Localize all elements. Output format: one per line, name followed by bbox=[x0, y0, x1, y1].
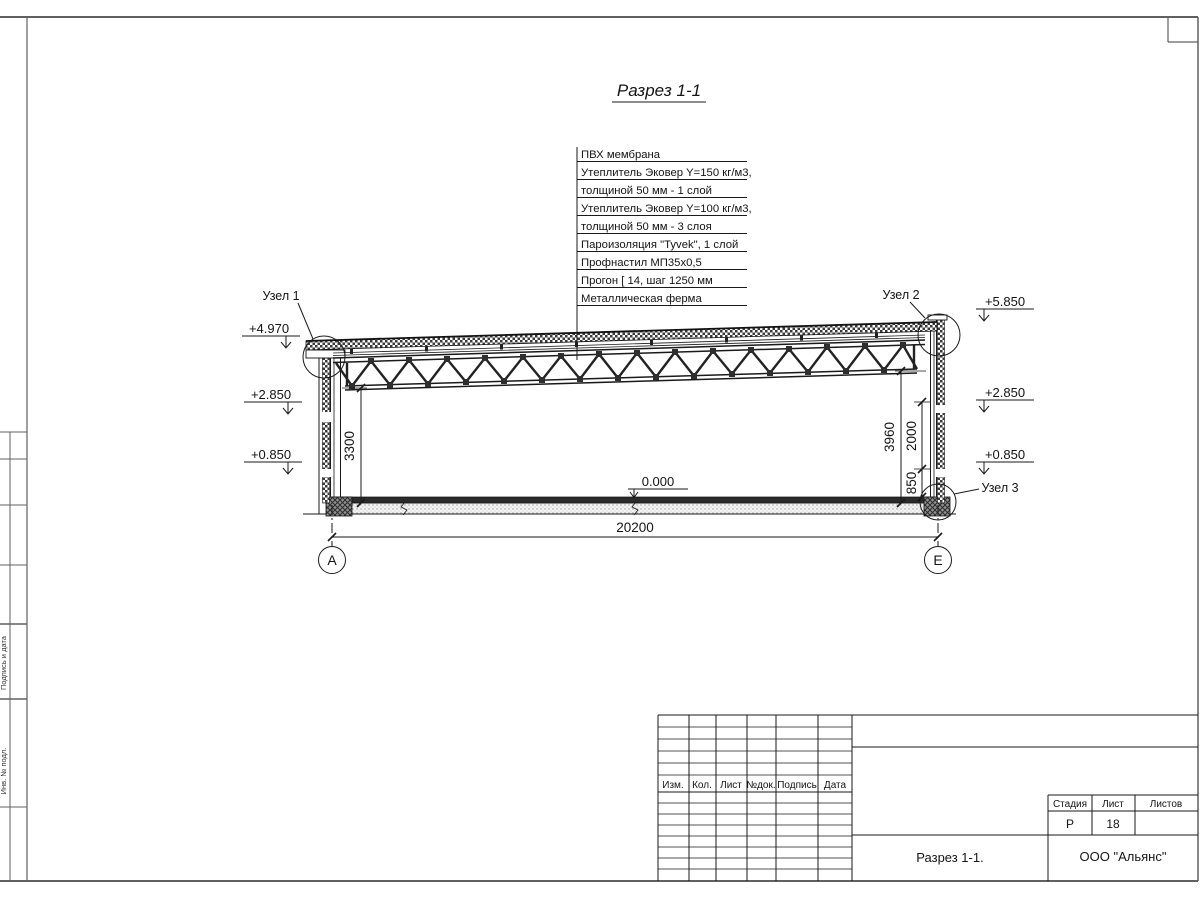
left-wall bbox=[319, 350, 341, 514]
level-right-low: +0.850 bbox=[985, 447, 1025, 462]
level-right-top: +5.850 bbox=[985, 294, 1025, 309]
steel-truss bbox=[333, 340, 925, 390]
node-2-label: Узел 2 bbox=[882, 288, 919, 302]
level-left-mid: +2.850 bbox=[251, 387, 291, 402]
node-1-label: Узел 1 bbox=[262, 289, 299, 303]
tb-stage-value: Р bbox=[1066, 817, 1074, 831]
layer-label-3: Утеплитель Эковер Y=100 кг/м3, bbox=[581, 203, 752, 215]
layer-label-8: Металлическая ферма bbox=[581, 293, 702, 305]
layer-label-7: Прогон [ 14, шаг 1250 мм bbox=[581, 275, 713, 287]
view-title: Разрез 1-1 bbox=[612, 81, 706, 102]
tb-header-doc: №док. bbox=[746, 780, 775, 791]
tb-sheets-label: Листов bbox=[1150, 799, 1183, 810]
tb-header-kol: Кол. bbox=[692, 780, 712, 791]
level-left-top: +4.970 bbox=[249, 321, 289, 336]
tb-company: ООО "Альянс" bbox=[1080, 849, 1167, 864]
dim-span: 20200 bbox=[616, 520, 654, 535]
tb-sheet-label: Лист bbox=[1102, 799, 1124, 810]
tb-sheet-value: 18 bbox=[1106, 817, 1120, 831]
section-drawing-canvas: Подпись и дата Инв. № подл. Разрез 1-1 bbox=[0, 0, 1200, 900]
axis-left-label: А bbox=[327, 552, 337, 568]
axis-right-label: Е bbox=[933, 552, 942, 568]
layer-label-2: толщиной 50 мм - 1 слой bbox=[581, 185, 712, 197]
dim-low-height: 850 bbox=[904, 472, 919, 495]
level-zero: 0.000 bbox=[642, 474, 675, 489]
dim-mid-height: 2000 bbox=[904, 421, 919, 451]
layer-label-0: ПВХ мембрана bbox=[581, 149, 661, 161]
view-title-text: Разрез 1-1 bbox=[617, 81, 701, 100]
tb-drawing-name: Разрез 1-1. bbox=[916, 850, 983, 865]
tb-stage-label: Стадия bbox=[1053, 799, 1087, 810]
level-left-low: +0.850 bbox=[251, 447, 291, 462]
roof-edge-beam bbox=[306, 350, 345, 358]
side-stamp-label-1: Подпись и дата bbox=[0, 635, 8, 690]
dim-left-height: 3300 bbox=[342, 431, 357, 461]
title-block: Изм. Кол. Лист №док. Подпись Дата Стадия… bbox=[658, 715, 1198, 881]
layer-label-6: Профнастил МП35х0,5 bbox=[581, 257, 702, 269]
floor-slab bbox=[303, 497, 956, 515]
dimensions: 20200 А Е 3300 3960 2000 850 bbox=[319, 367, 952, 574]
side-stamp-label-2: Инв. № подл. bbox=[0, 748, 8, 795]
tb-header-izm: Изм. bbox=[662, 780, 683, 791]
tb-header-list: Лист bbox=[720, 780, 742, 791]
dim-right-height: 3960 bbox=[882, 422, 897, 452]
layer-label-5: Пароизоляция "Tyvek", 1 слой bbox=[581, 239, 738, 251]
drawing-sheet: Подпись и дата Инв. № подл. Разрез 1-1 bbox=[0, 0, 1200, 900]
tb-header-podpis: Подпись bbox=[777, 780, 817, 791]
level-right-mid: +2.850 bbox=[985, 385, 1025, 400]
layer-label-4: толщиной 50 мм - 3 слоя bbox=[581, 221, 712, 233]
right-wall bbox=[928, 315, 947, 503]
tb-header-data: Дата bbox=[824, 780, 847, 791]
node-3-label: Узел 3 bbox=[981, 481, 1018, 495]
layer-label-1: Утеплитель Эковер Y=150 кг/м3, bbox=[581, 167, 752, 179]
roof-package bbox=[306, 322, 937, 358]
